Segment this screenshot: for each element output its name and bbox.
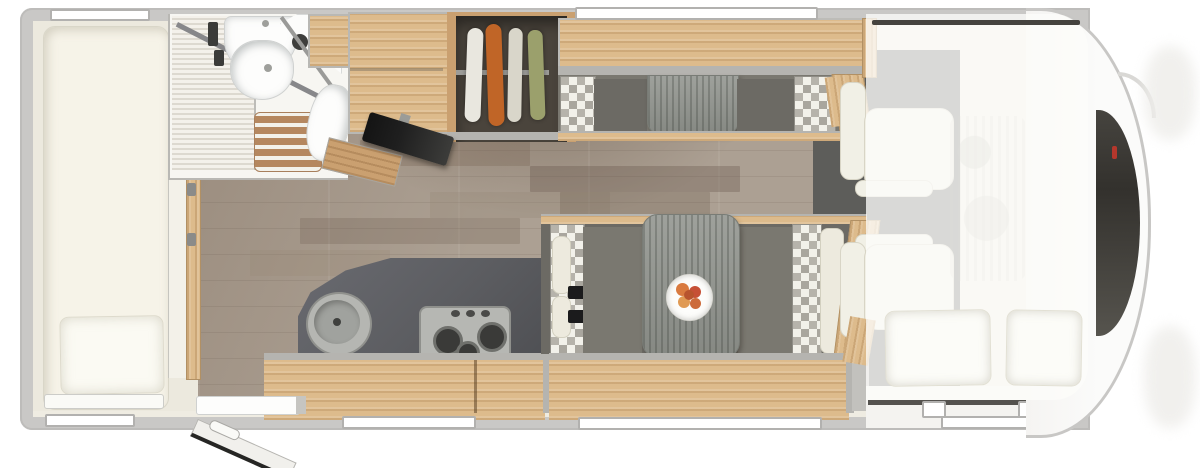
window-rear-bed-bottom xyxy=(45,414,135,427)
garment-green xyxy=(527,30,545,120)
dinette-overhead-locker xyxy=(558,18,866,72)
rear-bed-pillow xyxy=(59,315,164,395)
hob-knob xyxy=(451,310,460,317)
fruit xyxy=(690,298,701,309)
window-dinette-top xyxy=(575,7,818,20)
kitchen-base-cabinet xyxy=(264,353,545,420)
cabinet-divider xyxy=(474,360,477,413)
hob-burner xyxy=(477,322,507,352)
overcab-bed-pillow-left xyxy=(884,309,991,387)
rear-dinette-seat-right xyxy=(737,79,794,133)
overcab-bed-pillow-right xyxy=(1005,309,1082,386)
window-dinette-bottom xyxy=(578,417,822,430)
rear-dinette-seat-left xyxy=(594,79,647,133)
front-dinette-seat-left xyxy=(583,227,642,353)
door-hinge xyxy=(187,233,196,246)
door-hinge xyxy=(187,183,196,196)
overhead-cabinet-large xyxy=(348,12,449,134)
locker-front-edge xyxy=(558,66,862,75)
brand-mark xyxy=(1112,146,1117,159)
garment-cream xyxy=(507,28,523,122)
rear-bed-step xyxy=(44,394,164,409)
rear-dinette-front-edge xyxy=(558,131,864,141)
floorplan-canvas xyxy=(0,0,1200,468)
rear-dinette-cushion-left xyxy=(560,76,596,134)
cabinet-shelf-line xyxy=(350,68,443,71)
wardrobe-base-edge xyxy=(447,132,558,140)
entry-door-frame-post xyxy=(296,396,306,414)
garment-white xyxy=(464,28,483,123)
sink-drain xyxy=(333,318,341,326)
side-mirror-top xyxy=(1144,46,1196,140)
front-dinette-seat-right xyxy=(738,227,792,353)
driver-seat-back xyxy=(840,82,866,180)
shower-rail-handle xyxy=(208,22,218,46)
hob-knob xyxy=(466,310,475,317)
rear-dinette-table xyxy=(647,75,739,135)
overhead-cabinet-small xyxy=(308,14,352,68)
hob-knob xyxy=(481,310,490,317)
drop-down-bed-overlay xyxy=(866,14,1088,400)
side-mirror-bottom xyxy=(1144,326,1196,428)
floor-plank-shade xyxy=(530,166,740,192)
shower-rail-handle xyxy=(214,50,224,66)
entry-threshold xyxy=(196,396,300,415)
fruit xyxy=(684,290,694,300)
partition-wall xyxy=(186,178,201,380)
front-dinette-cushion-right xyxy=(792,224,822,356)
front-dinette-base-panel xyxy=(549,353,849,420)
faucet xyxy=(262,20,269,27)
plate xyxy=(666,274,713,321)
floor-plank-shade xyxy=(300,218,520,244)
kitchen-sink xyxy=(306,292,372,356)
window-rear-bed-top xyxy=(50,9,150,21)
window-kitchen-bottom xyxy=(342,416,476,429)
washbasin-bowl xyxy=(230,40,294,100)
faucet xyxy=(264,64,272,72)
bed-frame-edge xyxy=(872,20,1080,25)
cab-door-seam xyxy=(868,400,1026,405)
